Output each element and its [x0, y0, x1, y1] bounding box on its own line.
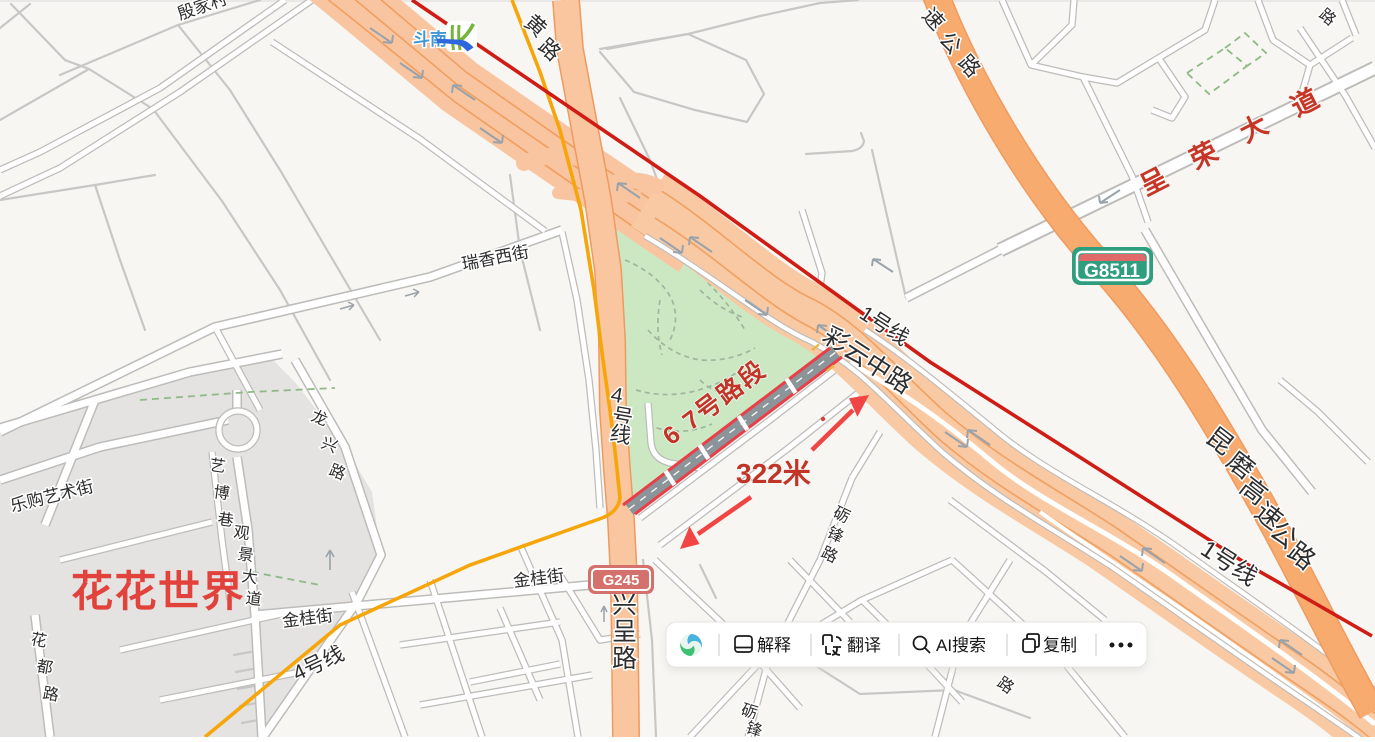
svg-text:路: 路 [41, 684, 60, 705]
svg-text:兴: 兴 [612, 591, 637, 619]
svg-text:观: 观 [232, 524, 250, 543]
svg-text:景: 景 [236, 546, 254, 565]
svg-text:G245: G245 [603, 572, 640, 589]
svg-text:花: 花 [29, 630, 48, 651]
svg-text:复制: 复制 [1043, 636, 1077, 655]
svg-text:解释: 解释 [757, 636, 791, 655]
svg-text:花花世界: 花花世界 [71, 568, 245, 615]
svg-text:博: 博 [212, 483, 230, 503]
svg-text:巷: 巷 [216, 510, 234, 530]
svg-text:路: 路 [612, 645, 637, 673]
svg-text:艺: 艺 [208, 456, 226, 476]
svg-text:G8511: G8511 [1084, 261, 1140, 282]
svg-text:呈: 呈 [612, 618, 637, 646]
svg-text:都: 都 [35, 657, 54, 678]
svg-text:翻译: 翻译 [847, 636, 881, 655]
svg-text:线: 线 [608, 422, 633, 448]
svg-text:322米: 322米 [736, 458, 811, 489]
svg-text:AI搜索: AI搜索 [936, 636, 986, 655]
svg-text:道: 道 [244, 589, 262, 609]
